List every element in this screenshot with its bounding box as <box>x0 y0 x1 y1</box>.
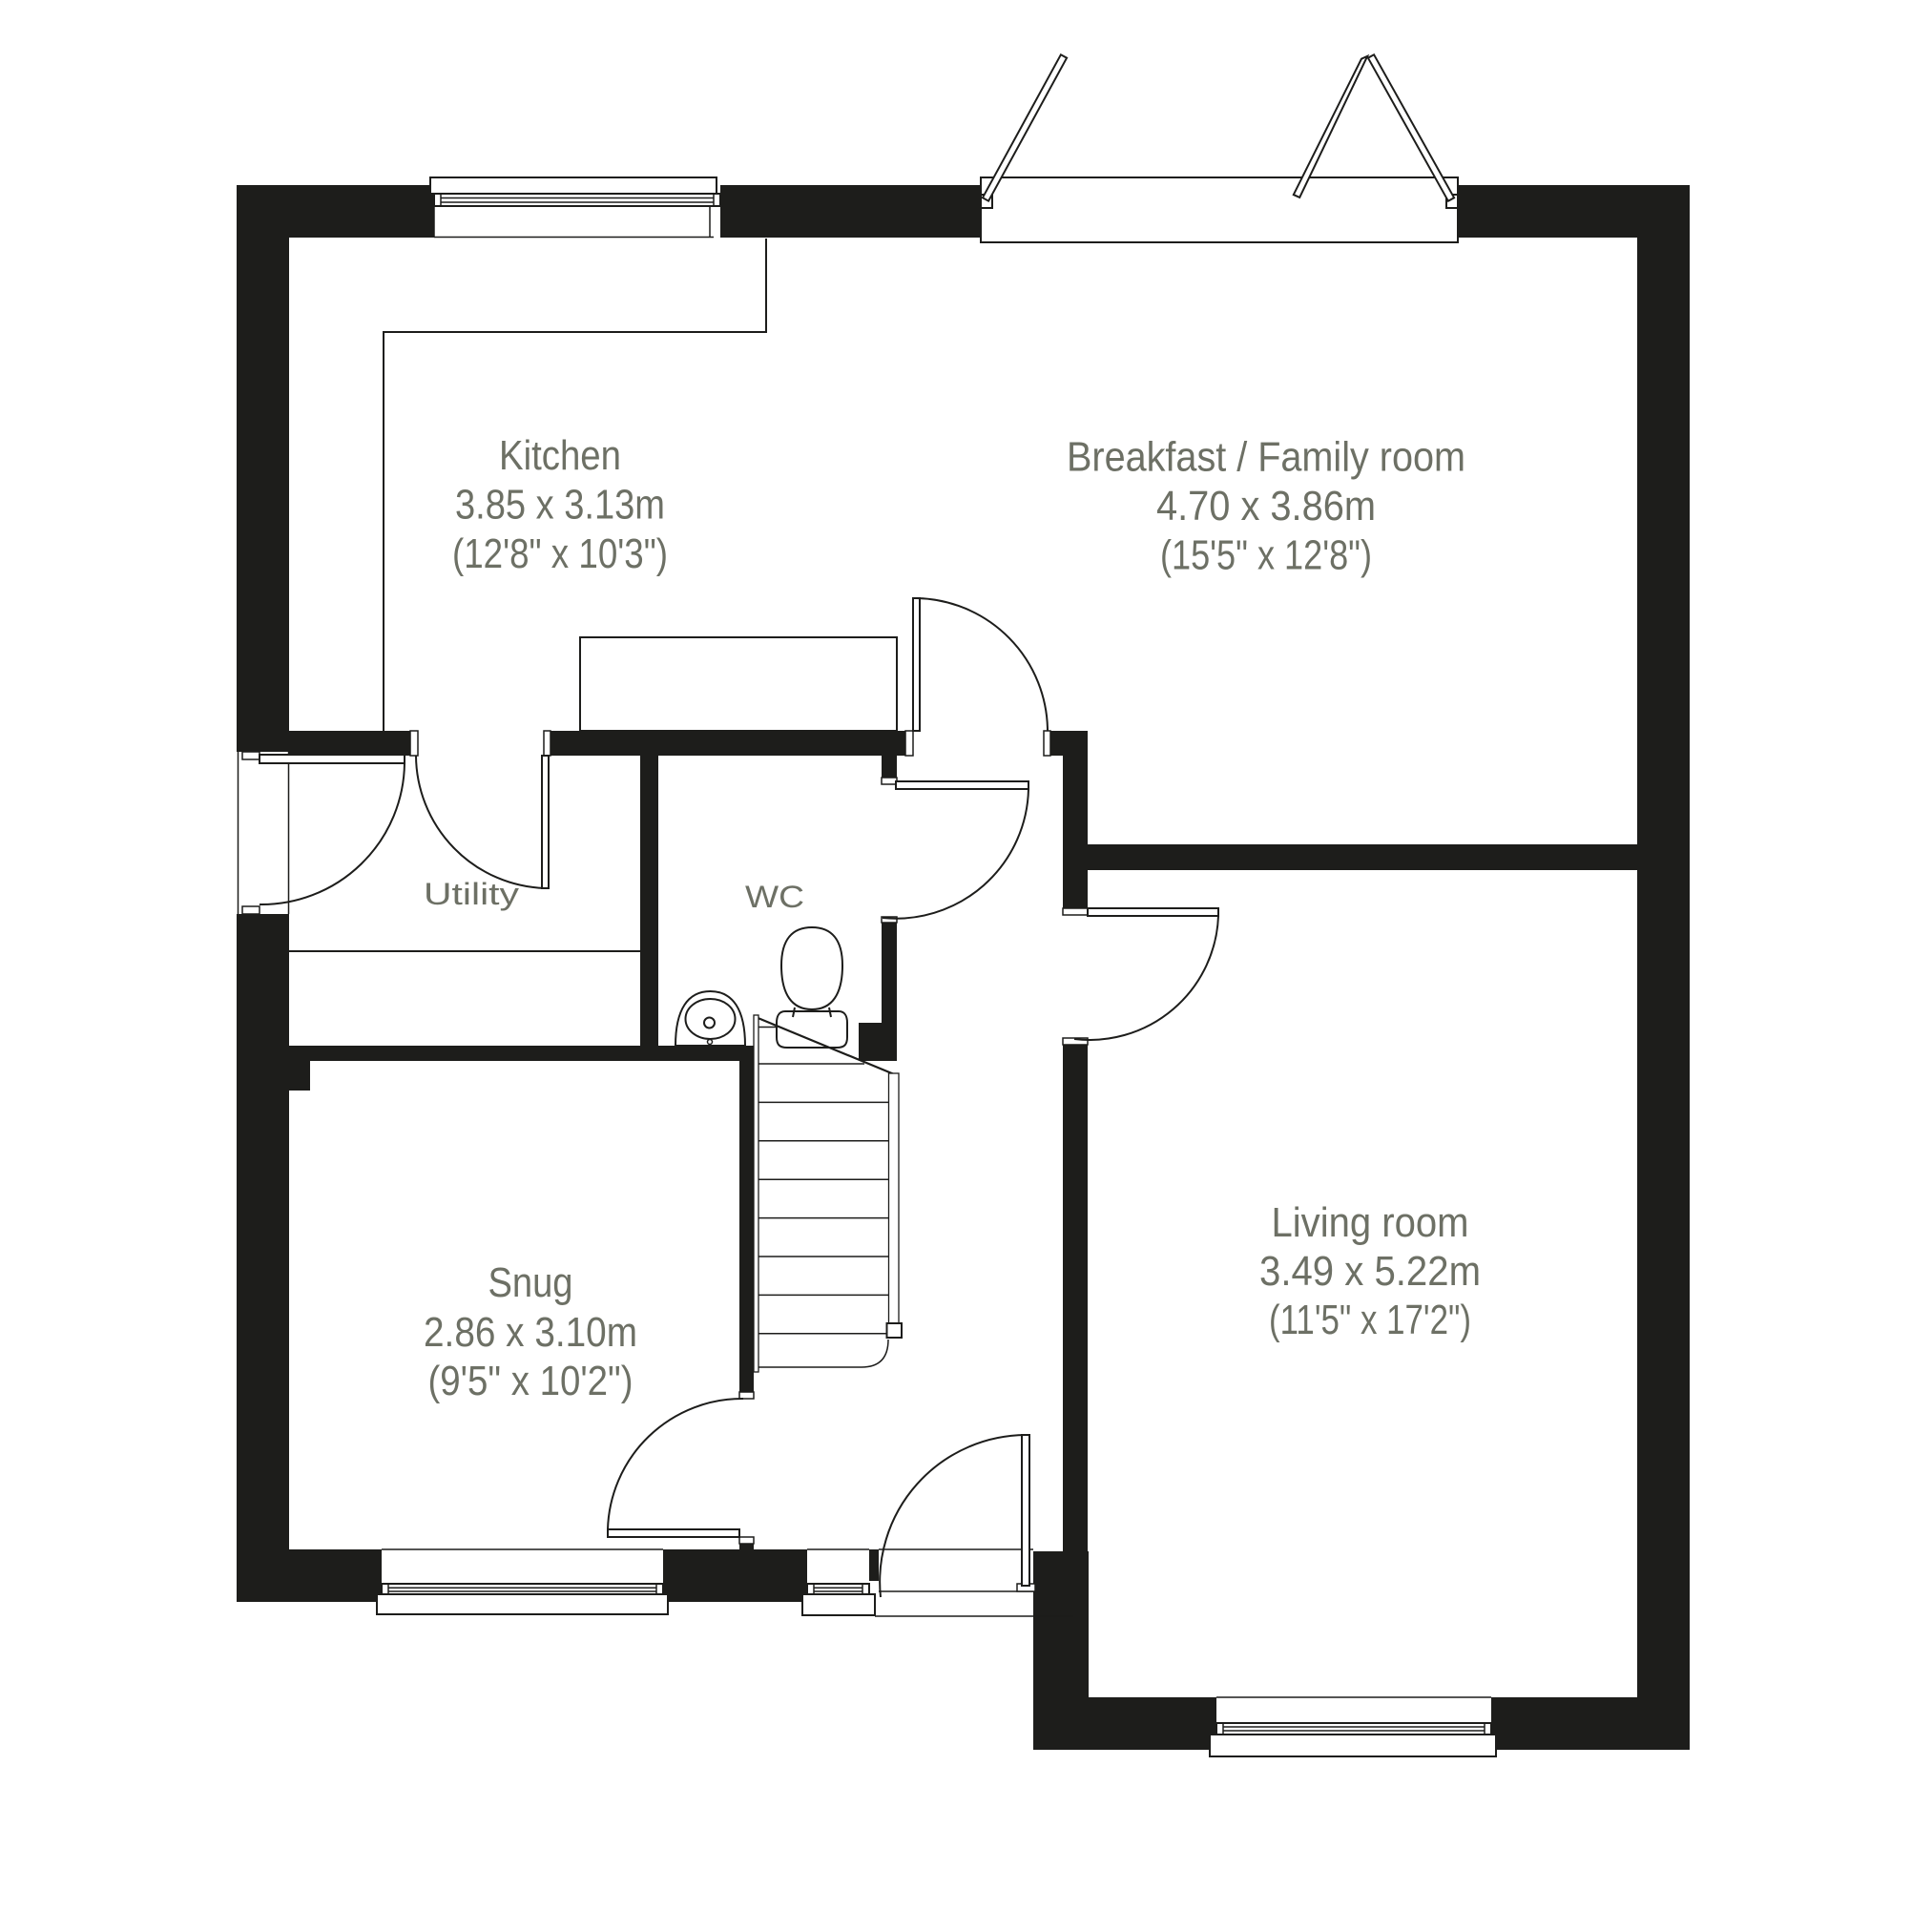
svg-text:2.86 x 3.10m: 2.86 x 3.10m <box>424 1309 637 1356</box>
svg-text:4.70 x 3.86m: 4.70 x 3.86m <box>1156 483 1376 530</box>
svg-text:Snug: Snug <box>488 1259 573 1306</box>
svg-text:3.85 x 3.13m: 3.85 x 3.13m <box>455 482 665 529</box>
svg-text:Kitchen: Kitchen <box>499 432 621 479</box>
svg-text:(12'8" x 10'3"): (12'8" x 10'3") <box>452 530 668 577</box>
svg-text:Breakfast / Family room: Breakfast / Family room <box>1067 434 1465 481</box>
svg-text:(15'5" x 12'8"): (15'5" x 12'8") <box>1160 532 1372 579</box>
svg-text:Utility: Utility <box>424 877 519 911</box>
svg-text:3.49 x 5.22m: 3.49 x 5.22m <box>1259 1248 1481 1295</box>
svg-text:(11'5" x 17'2"): (11'5" x 17'2") <box>1269 1297 1471 1343</box>
svg-text:Living room: Living room <box>1272 1199 1469 1246</box>
svg-text:WC: WC <box>745 880 804 914</box>
svg-text:(9'5" x 10'2"): (9'5" x 10'2") <box>428 1358 634 1404</box>
